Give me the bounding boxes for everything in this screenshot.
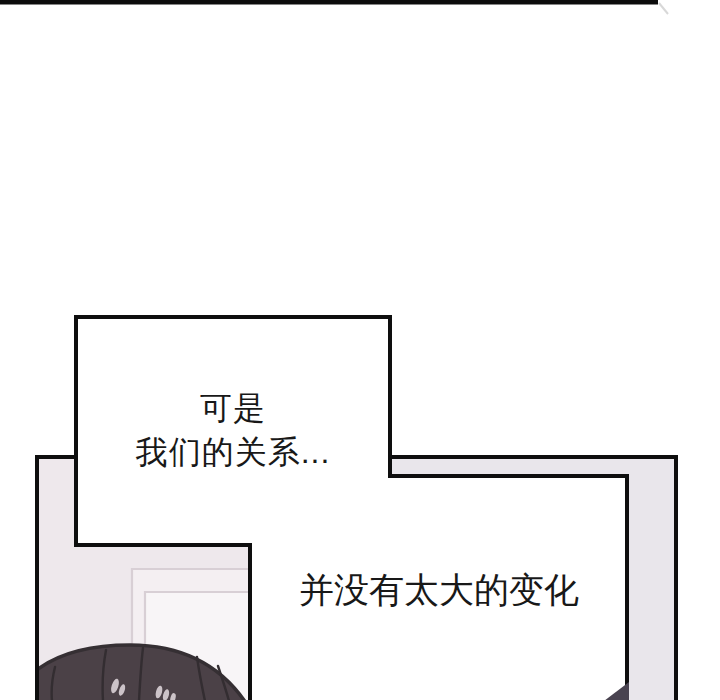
speech-bubble-line-1: 可是: [76, 386, 390, 430]
speech-bubble-text: 可是 我们的关系...: [76, 386, 390, 474]
comic-page: 可是 我们的关系... 并没有太大的变化: [0, 0, 720, 700]
top-border-bar: [0, 0, 658, 5]
top-bar-smudge: [659, 3, 668, 14]
speech-bubble-line-2: 我们的关系...: [76, 430, 390, 474]
dialogue-text: 并没有太大的变化: [250, 570, 628, 610]
